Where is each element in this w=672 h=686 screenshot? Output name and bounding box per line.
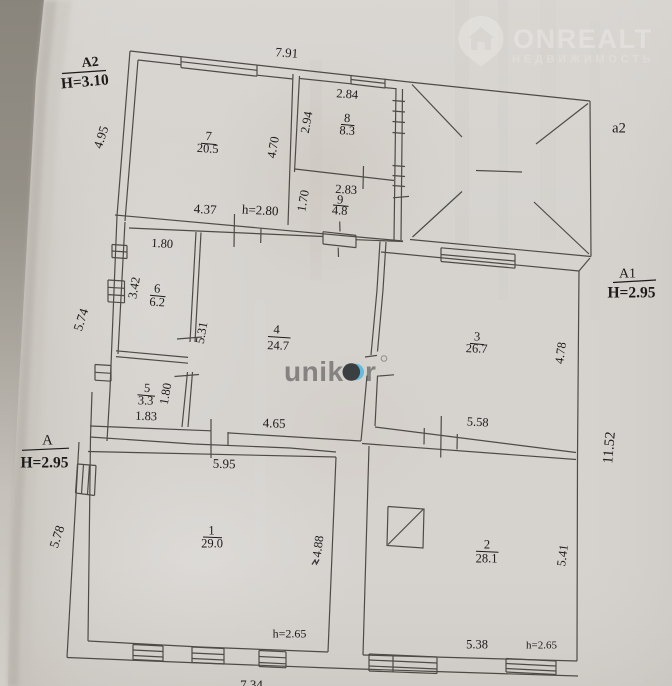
svg-text:4.37: 4.37 [193, 201, 217, 217]
svg-text:11.52: 11.52 [600, 431, 619, 464]
svg-text:3.3: 3.3 [138, 393, 154, 408]
svg-text:A1: A1 [619, 267, 636, 282]
svg-text:a2: a2 [612, 121, 626, 137]
svg-text:5.95: 5.95 [213, 456, 236, 472]
svg-text:4.65: 4.65 [263, 415, 286, 431]
svg-text:1.80: 1.80 [151, 236, 174, 251]
svg-text:НЕДВИЖИМОСТЬ: НЕДВИЖИМОСТЬ [512, 54, 654, 66]
svg-text:h=2.65: h=2.65 [526, 640, 557, 652]
svg-text:2: 2 [484, 538, 490, 552]
svg-text:8.3: 8.3 [339, 123, 355, 138]
svg-text:1: 1 [208, 524, 214, 538]
svg-text:26.7: 26.7 [465, 341, 487, 356]
svg-text:unik: unik [284, 356, 344, 387]
svg-text:h=2.65: h=2.65 [273, 627, 307, 641]
svg-text:h=2.80: h=2.80 [242, 202, 279, 219]
svg-text:1.83: 1.83 [135, 409, 157, 424]
svg-text:5.38: 5.38 [466, 638, 488, 652]
svg-text:24.7: 24.7 [267, 338, 289, 353]
svg-text:6: 6 [154, 281, 161, 295]
svg-text:H=2.95: H=2.95 [20, 455, 68, 472]
svg-text:20.5: 20.5 [196, 141, 219, 156]
svg-text:7.34: 7.34 [240, 677, 263, 686]
svg-text:A: A [42, 433, 53, 449]
svg-text:H=2.95: H=2.95 [607, 285, 655, 302]
svg-text:5.58: 5.58 [466, 414, 489, 429]
svg-text:29.0: 29.0 [201, 537, 223, 551]
svg-text:ONREALT: ONREALT [513, 24, 653, 54]
svg-text:4.8: 4.8 [332, 203, 348, 218]
svg-text:7.91: 7.91 [275, 44, 299, 61]
svg-text:6.2: 6.2 [149, 295, 165, 310]
svg-text:A2: A2 [81, 55, 99, 71]
svg-text:28.1: 28.1 [476, 552, 498, 566]
svg-text:2.84: 2.84 [336, 86, 360, 102]
